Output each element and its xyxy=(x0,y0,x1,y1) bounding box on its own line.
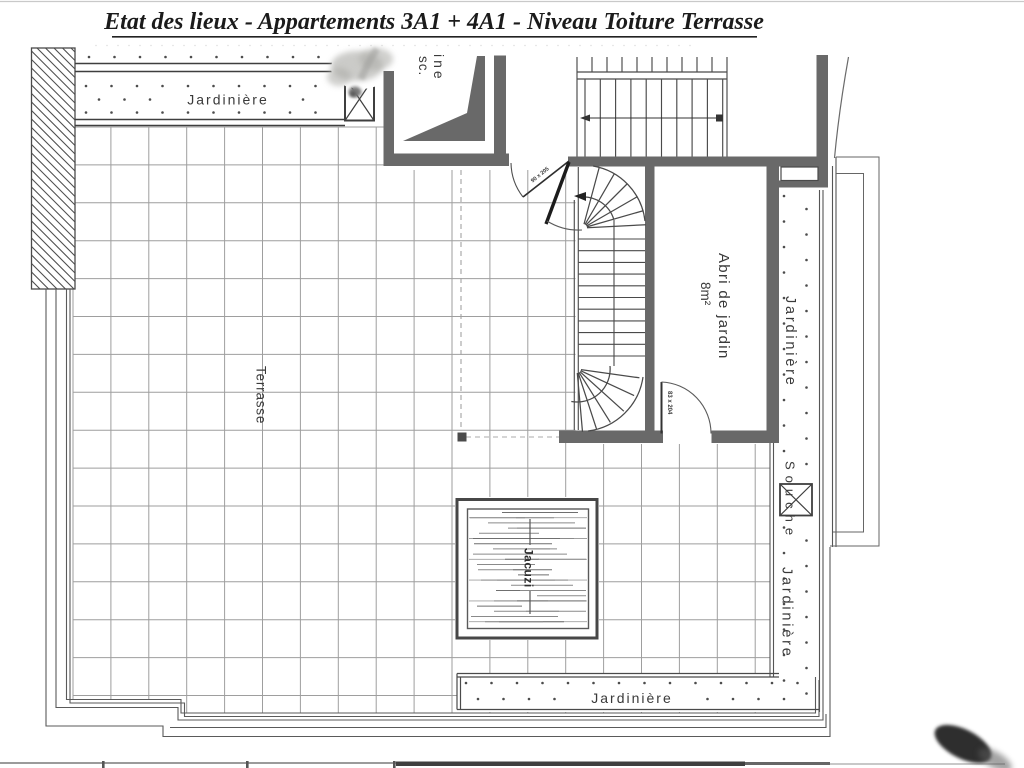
svg-text:Etat des lieux - Appartements: Etat des lieux - Appartements 3A1 + 4A1 … xyxy=(103,9,764,35)
svg-text:Jacuzi: Jacuzi xyxy=(522,548,536,588)
svg-text:Terrasse: Terrasse xyxy=(254,366,269,424)
svg-text:ine: ine xyxy=(431,54,447,82)
svg-text:Jardinière: Jardinière xyxy=(591,690,672,706)
svg-text:sc.: sc. xyxy=(416,56,431,76)
svg-text:Souche: Souche xyxy=(783,461,798,541)
svg-text:8m²: 8m² xyxy=(698,282,713,306)
svg-text:Jardinière: Jardinière xyxy=(782,296,798,388)
svg-text:Jardinière: Jardinière xyxy=(187,92,268,108)
svg-text:83 x 204: 83 x 204 xyxy=(666,391,672,415)
svg-text:Jardinière: Jardinière xyxy=(779,567,795,659)
svg-text:Abri de jardin: Abri de jardin xyxy=(715,253,732,360)
